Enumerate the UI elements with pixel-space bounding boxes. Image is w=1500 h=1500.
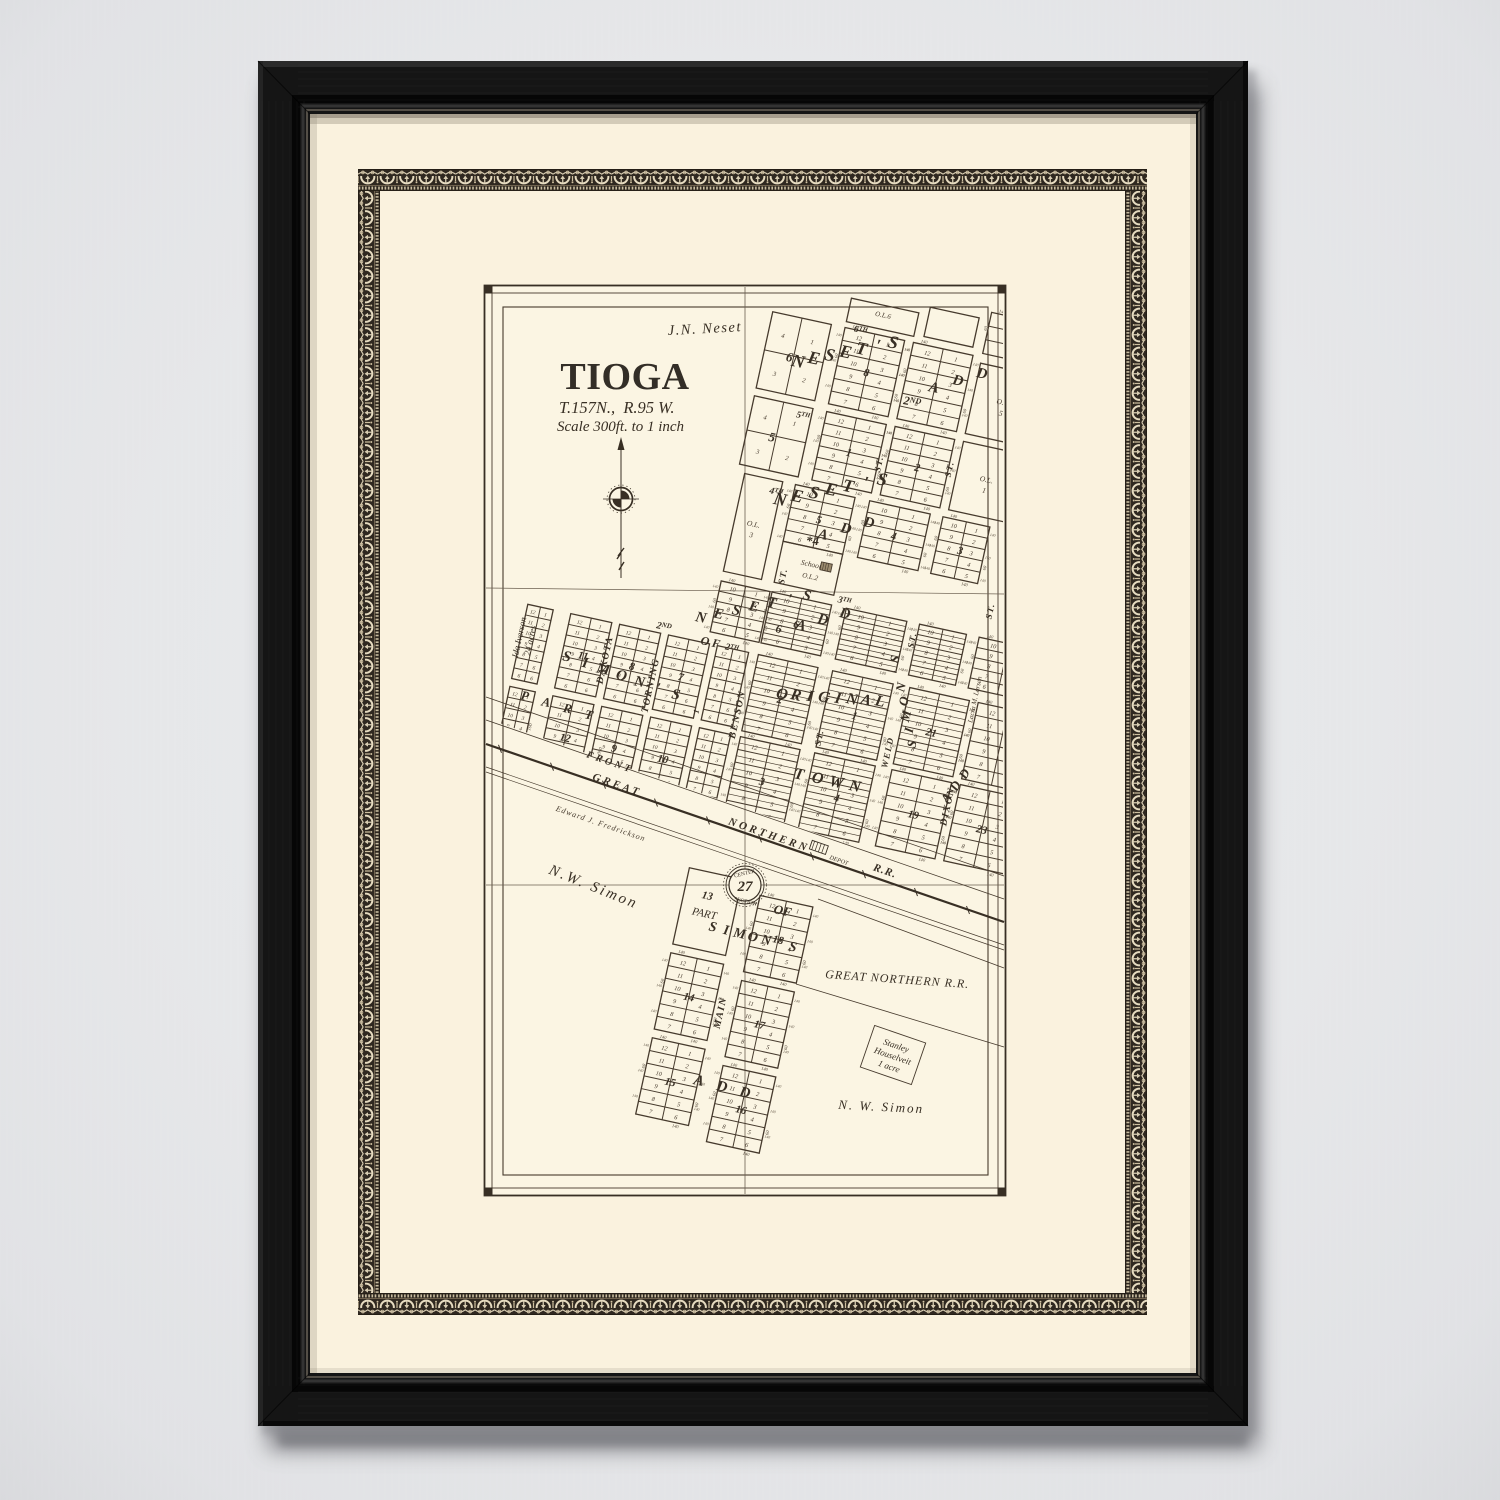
svg-text:*4: *4 — [806, 533, 820, 548]
svg-text:27: 27 — [737, 879, 754, 895]
svg-text:21: 21 — [923, 726, 937, 740]
svg-text:TIOGA: TIOGA — [560, 356, 689, 398]
svg-text:Scale 300ft. to 1 inch: Scale 300ft. to 1 inch — [557, 419, 684, 435]
svg-text:T.157N., R.95 W.: T.157N., R.95 W. — [559, 398, 675, 417]
